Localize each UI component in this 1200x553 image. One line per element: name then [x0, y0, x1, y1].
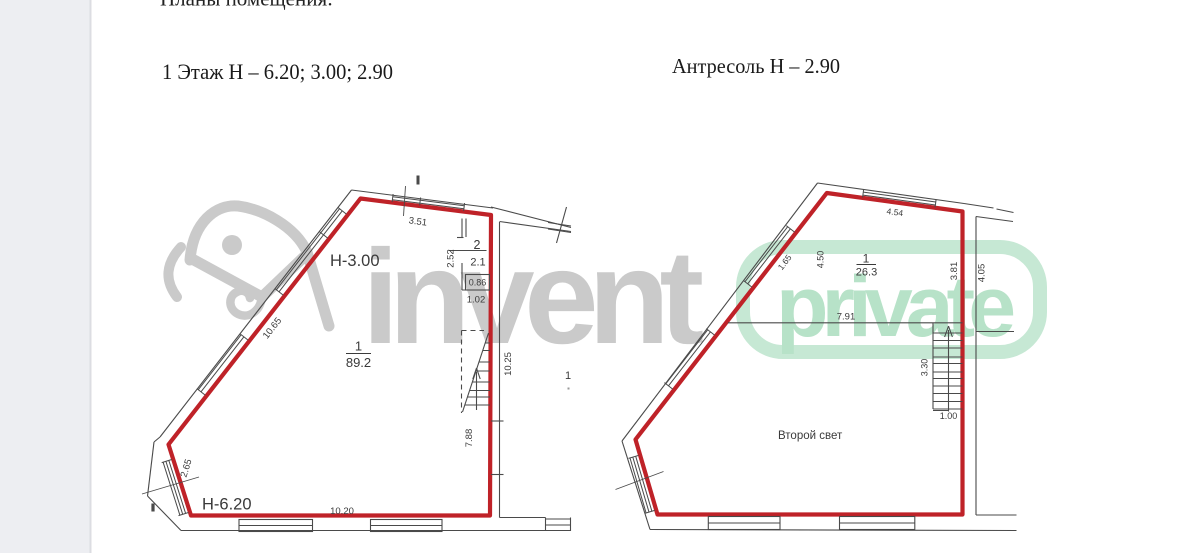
- svg-text:10.20: 10.20: [330, 506, 354, 517]
- svg-text:3.30: 3.30: [920, 359, 930, 377]
- svg-text:Н-6.20: Н-6.20: [202, 496, 252, 514]
- svg-text:89.2: 89.2: [346, 355, 371, 370]
- svg-text:1.00: 1.00: [940, 411, 958, 421]
- svg-text:Антресоль Н – 2.90: Антресоль Н – 2.90: [672, 54, 840, 78]
- svg-text:3.81: 3.81: [949, 262, 960, 281]
- svg-text:Н-3.00: Н-3.00: [330, 252, 380, 270]
- svg-text:invent: invent: [362, 223, 702, 372]
- svg-text:4.05: 4.05: [977, 264, 988, 283]
- svg-text:4.50: 4.50: [816, 251, 826, 269]
- svg-text:1: 1: [863, 252, 870, 266]
- svg-text:1: 1: [355, 339, 362, 354]
- svg-text:7.88: 7.88: [464, 429, 475, 448]
- svg-text:26.3: 26.3: [856, 267, 877, 279]
- svg-text:1 Этаж Н – 6.20; 3.00; 2.90: 1 Этаж Н – 6.20; 3.00; 2.90: [162, 59, 393, 84]
- svg-text:7.91: 7.91: [837, 312, 856, 323]
- svg-text:2.52: 2.52: [446, 249, 457, 268]
- svg-text:1: 1: [565, 370, 571, 382]
- svg-text:1.02: 1.02: [467, 295, 486, 306]
- svg-text:Планы помещения:: Планы помещения:: [160, 0, 333, 11]
- svg-text:Второй свет: Второй свет: [778, 430, 843, 442]
- svg-text:0.86: 0.86: [469, 278, 487, 288]
- svg-text:2: 2: [474, 238, 481, 252]
- svg-text:2.1: 2.1: [470, 257, 485, 269]
- svg-text:10.25: 10.25: [503, 352, 514, 376]
